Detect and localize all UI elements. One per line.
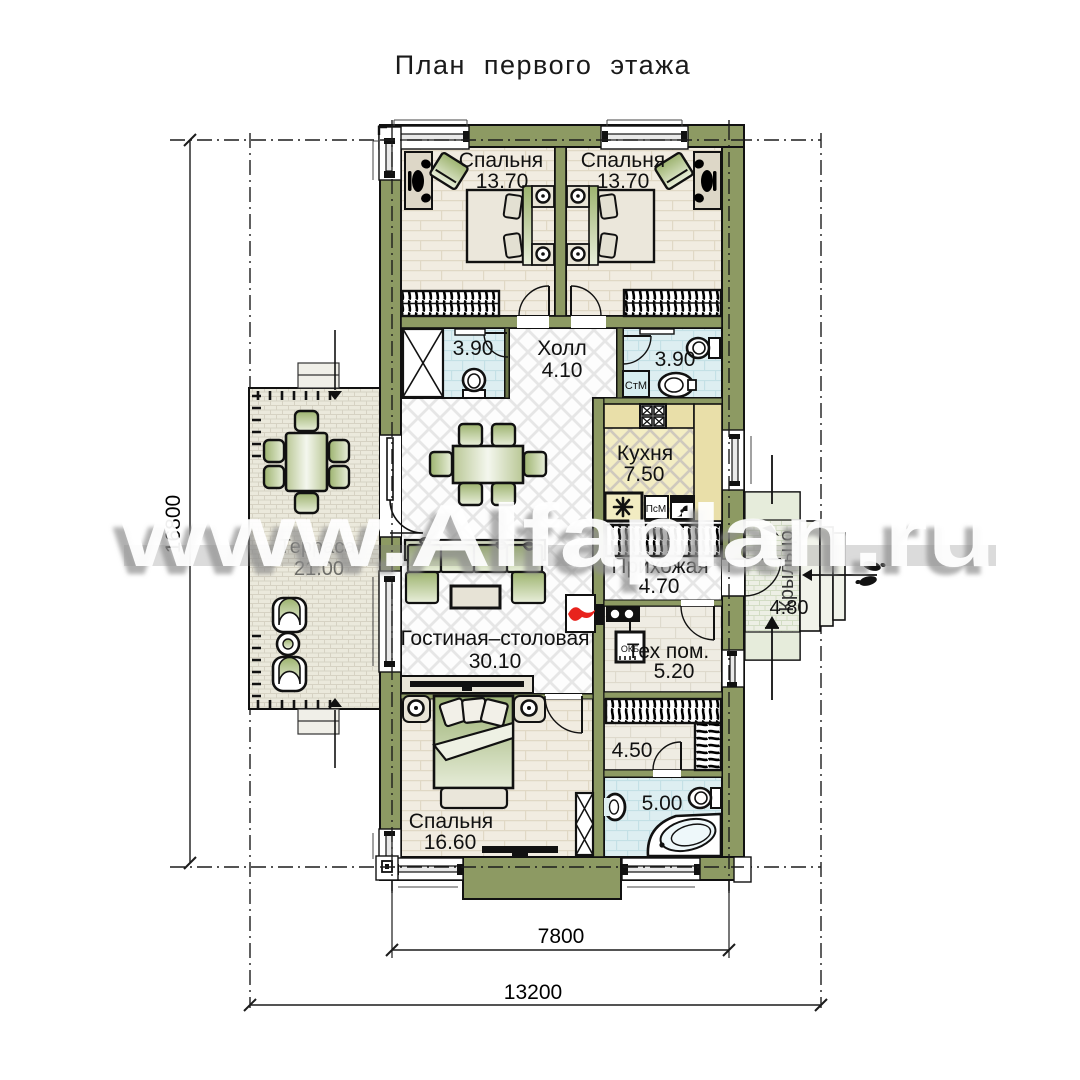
svg-text:Гостиная–столовая: Гостиная–столовая — [400, 627, 589, 650]
svg-text:Холл: Холл — [537, 337, 587, 360]
svg-text:Спальня: Спальня — [581, 149, 665, 172]
svg-text:www.Alfaplan.ru: www.Alfaplan.ru — [120, 486, 996, 585]
svg-text:30.10: 30.10 — [469, 650, 522, 673]
svg-text:Спальня: Спальня — [459, 149, 543, 172]
svg-text:План первого этажа: План первого этажа — [395, 50, 691, 80]
svg-text:Спальня: Спальня — [409, 810, 493, 833]
svg-text:13.70: 13.70 — [476, 170, 529, 193]
svg-text:3.90: 3.90 — [453, 337, 494, 360]
svg-text:СтМ: СтМ — [625, 380, 647, 392]
svg-text:13200: 13200 — [504, 981, 562, 1004]
svg-text:4.10: 4.10 — [542, 359, 583, 382]
svg-text:4.80: 4.80 — [770, 597, 809, 619]
svg-text:5.00: 5.00 — [642, 792, 683, 815]
svg-text:7800: 7800 — [538, 925, 585, 948]
svg-text:5.20: 5.20 — [654, 660, 695, 683]
svg-text:Кухня: Кухня — [617, 442, 673, 465]
svg-text:7.50: 7.50 — [624, 463, 665, 486]
svg-text:4.50: 4.50 — [612, 739, 653, 762]
svg-text:13.70: 13.70 — [597, 170, 650, 193]
svg-text:16.60: 16.60 — [424, 831, 477, 854]
svg-text:3.90: 3.90 — [655, 348, 696, 371]
